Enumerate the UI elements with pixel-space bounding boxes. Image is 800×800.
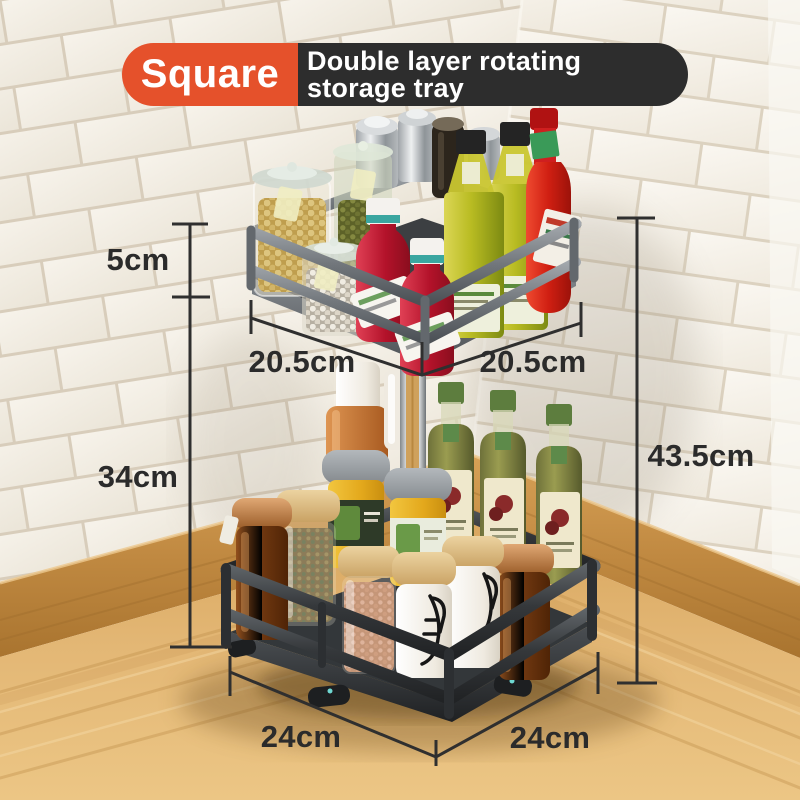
dim-label-base-left: 24cm xyxy=(261,719,342,755)
product-title-line1: Double layer rotating xyxy=(307,48,581,75)
shape-badge: Square xyxy=(122,43,298,106)
product-title-pill: Double layer rotating storage tray xyxy=(298,43,688,106)
shape-badge-label: Square xyxy=(141,52,280,97)
product-infographic: Square Double layer rotating storage tra… xyxy=(0,0,800,800)
dim-label-overall-height: 43.5cm xyxy=(648,438,755,474)
product-title-line2: storage tray xyxy=(307,75,464,102)
dim-label-upper-tier-height: 5cm xyxy=(107,242,170,278)
steel-shaker-2 xyxy=(398,109,436,182)
dim-label-upper-tray-left: 20.5cm xyxy=(249,344,356,380)
dim-label-base-right: 24cm xyxy=(510,720,591,756)
scene-illustration xyxy=(0,0,800,800)
dim-label-stand-height: 34cm xyxy=(98,459,179,495)
dim-label-upper-tray-right: 20.5cm xyxy=(480,344,587,380)
wall-corner-highlight xyxy=(768,0,800,580)
